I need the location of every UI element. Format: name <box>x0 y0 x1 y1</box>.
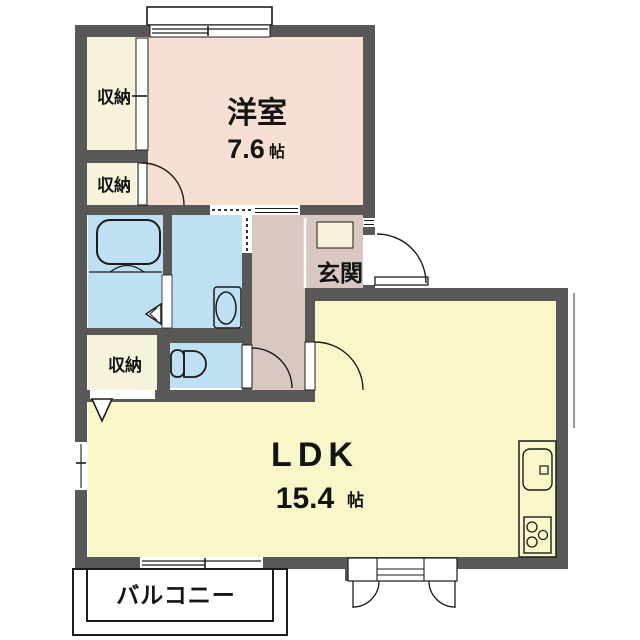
front-door-leaf <box>375 277 428 285</box>
toilet-door <box>242 345 252 388</box>
floorplan-svg: 洋室 7.6 帖 LDK 15.4 帖 玄関 収納 収納 収納 バルコニー <box>0 0 640 640</box>
closet3-label: 収納 <box>108 355 142 375</box>
balcony-label: バルコニー <box>116 582 236 608</box>
ldk-door <box>305 342 315 390</box>
washroom-floor <box>172 215 242 328</box>
ldk-size-unit: 帖 <box>347 490 364 510</box>
closet3-opening <box>90 390 155 399</box>
french-door-left-swing-arc-icon <box>353 581 379 607</box>
western-room-window <box>150 25 270 37</box>
front-door-swing-arc-icon <box>377 234 426 283</box>
closet1-door <box>136 38 148 150</box>
balcony-window <box>140 557 263 569</box>
shoe-cabinet <box>317 222 353 248</box>
western-room-sliding-door <box>210 205 300 215</box>
ldk-size: 15.4 <box>276 482 335 515</box>
closet2-door <box>138 163 147 205</box>
top-bay-outline <box>147 7 272 25</box>
closet2-label: 収納 <box>97 175 131 195</box>
front-door-opening <box>363 235 375 285</box>
bath-door-opening <box>162 275 172 328</box>
closet1-label: 収納 <box>97 87 131 107</box>
ldk-floor-left <box>88 402 556 557</box>
western-room-size-unit: 帖 <box>269 142 285 161</box>
corridor-floor <box>252 215 305 390</box>
ldk-label: LDK <box>271 436 359 474</box>
western-room-label: 洋室 <box>227 96 287 130</box>
entrance-label: 玄関 <box>317 260 363 286</box>
entrance-window <box>363 218 375 227</box>
french-door-right-swing-arc-icon <box>429 581 455 607</box>
floorplan-canvas: 洋室 7.6 帖 LDK 15.4 帖 玄関 収納 収納 収納 バルコニー <box>0 0 640 640</box>
western-room-size: 7.6 <box>227 134 265 164</box>
